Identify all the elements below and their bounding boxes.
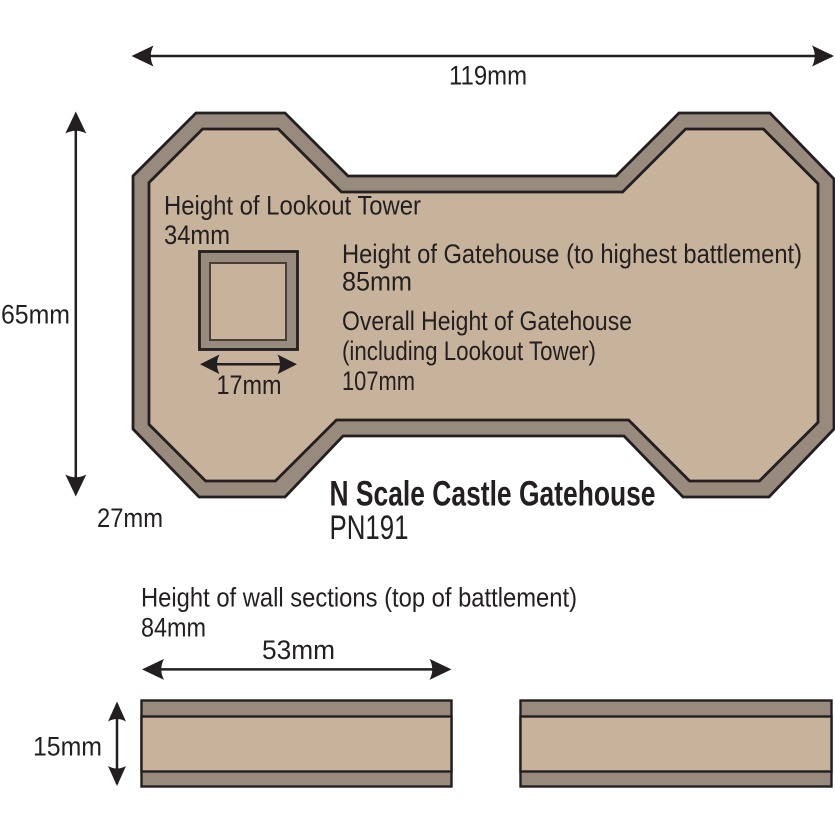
svg-text:15mm: 15mm — [33, 732, 102, 762]
svg-text:Height of Lookout Tower: Height of Lookout Tower — [164, 191, 421, 221]
svg-text:N Scale Castle Gatehouse: N Scale Castle Gatehouse — [330, 475, 656, 514]
svg-text:119mm: 119mm — [449, 61, 527, 91]
svg-text:85mm: 85mm — [342, 267, 412, 297]
svg-text:107mm: 107mm — [342, 366, 415, 396]
svg-text:PN191: PN191 — [330, 509, 409, 547]
svg-text:65mm: 65mm — [1, 300, 70, 330]
svg-text:(including Lookout Tower): (including Lookout Tower) — [342, 336, 596, 366]
svg-text:Overall Height of Gatehouse: Overall Height of Gatehouse — [342, 306, 632, 336]
svg-text:17mm: 17mm — [217, 370, 282, 400]
svg-text:84mm: 84mm — [141, 613, 206, 643]
svg-text:53mm: 53mm — [262, 635, 335, 665]
svg-text:Height of wall sections (top o: Height of wall sections (top of battleme… — [141, 583, 577, 613]
svg-text:34mm: 34mm — [164, 220, 230, 250]
svg-text:Height of Gatehouse (to highes: Height of Gatehouse (to highest battleme… — [342, 239, 802, 269]
svg-text:27mm: 27mm — [97, 503, 163, 533]
